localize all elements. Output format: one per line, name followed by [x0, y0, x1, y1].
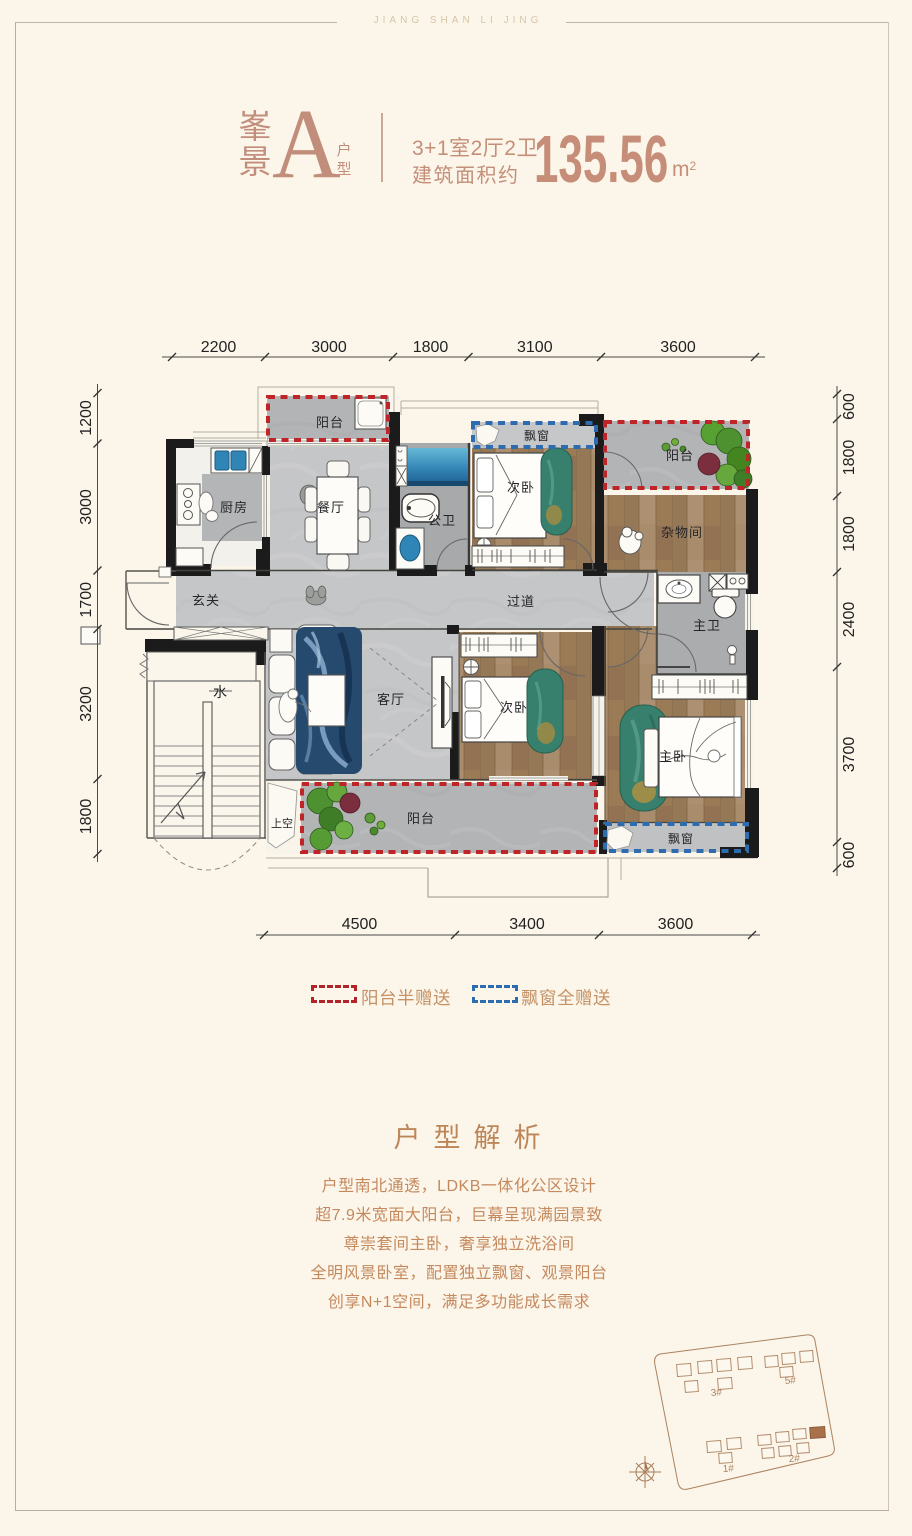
svg-text:杂物间: 杂物间 — [661, 525, 703, 540]
svg-text:3#: 3# — [710, 1387, 722, 1399]
svg-text:3400: 3400 — [509, 916, 545, 933]
svg-text:阳台: 阳台 — [407, 811, 435, 826]
svg-text:餐厅: 餐厅 — [317, 500, 345, 515]
svg-text:600: 600 — [841, 393, 858, 420]
svg-text:3600: 3600 — [660, 339, 696, 356]
svg-text:飘窗: 飘窗 — [668, 832, 694, 846]
svg-text:飘窗: 飘窗 — [524, 429, 550, 443]
svg-text:厨房: 厨房 — [220, 500, 248, 515]
svg-text:次卧: 次卧 — [500, 700, 528, 715]
svg-text:1200: 1200 — [78, 400, 95, 436]
svg-text:水: 水 — [213, 684, 227, 700]
svg-text:1#: 1# — [722, 1463, 734, 1475]
svg-text:阳台: 阳台 — [316, 415, 344, 430]
svg-text:客厅: 客厅 — [377, 692, 405, 707]
svg-text:2400: 2400 — [841, 602, 858, 638]
svg-text:2#: 2# — [788, 1453, 800, 1465]
svg-text:3200: 3200 — [78, 686, 95, 722]
svg-text:3000: 3000 — [78, 489, 95, 525]
svg-text:600: 600 — [841, 842, 858, 869]
svg-text:3700: 3700 — [841, 737, 858, 773]
svg-text:1800: 1800 — [841, 516, 858, 552]
svg-text:3100: 3100 — [517, 339, 553, 356]
svg-text:1800: 1800 — [413, 339, 449, 356]
svg-text:公卫: 公卫 — [428, 513, 456, 528]
svg-text:4500: 4500 — [342, 916, 378, 933]
svg-text:次卧: 次卧 — [507, 480, 535, 495]
svg-text:上空: 上空 — [271, 816, 293, 830]
svg-text:阳台: 阳台 — [666, 448, 694, 463]
svg-text:过道: 过道 — [507, 594, 535, 609]
svg-text:5#: 5# — [784, 1375, 796, 1387]
svg-text:主卧: 主卧 — [659, 749, 687, 764]
svg-text:3600: 3600 — [658, 916, 694, 933]
svg-text:2200: 2200 — [201, 339, 237, 356]
svg-text:1700: 1700 — [78, 582, 95, 618]
svg-text:玄关: 玄关 — [192, 593, 220, 608]
svg-text:3000: 3000 — [311, 339, 347, 356]
svg-text:1800: 1800 — [841, 440, 858, 476]
svg-text:1800: 1800 — [78, 799, 95, 835]
svg-text:主卫: 主卫 — [693, 618, 721, 633]
